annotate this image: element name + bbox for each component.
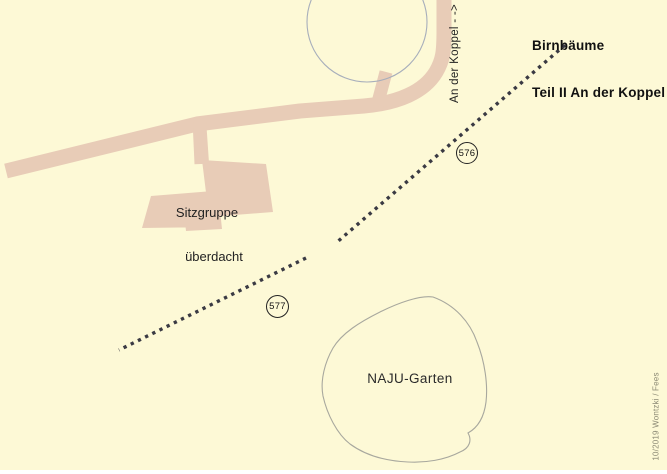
shelter-label: Sitzgruppe überdacht xyxy=(166,177,248,293)
street-name-label: An der Koppel - -> xyxy=(449,7,463,103)
map-title-line-1: Birnbäume xyxy=(532,38,665,54)
shelter-label-line-1: Sitzgruppe xyxy=(166,206,248,221)
garden-label: NAJU-Garten xyxy=(358,371,462,386)
trail-marker-577: 577 xyxy=(266,295,289,318)
trail-marker-576-number: 576 xyxy=(459,148,476,159)
trail-marker-577-number: 577 xyxy=(269,301,286,312)
road-branch-tree xyxy=(377,72,386,106)
map-title-line-2: Teil II An der Koppel xyxy=(532,85,665,101)
map-title: Birnbäume Teil II An der Koppel xyxy=(532,7,665,131)
trail-marker-576: 576 xyxy=(456,142,478,164)
credit-label: 10/2019 Wontzki / Fees xyxy=(652,364,663,470)
map-container: Birnbäume Teil II An der Koppel An der K… xyxy=(0,0,667,474)
shelter-label-line-2: überdacht xyxy=(173,250,255,265)
